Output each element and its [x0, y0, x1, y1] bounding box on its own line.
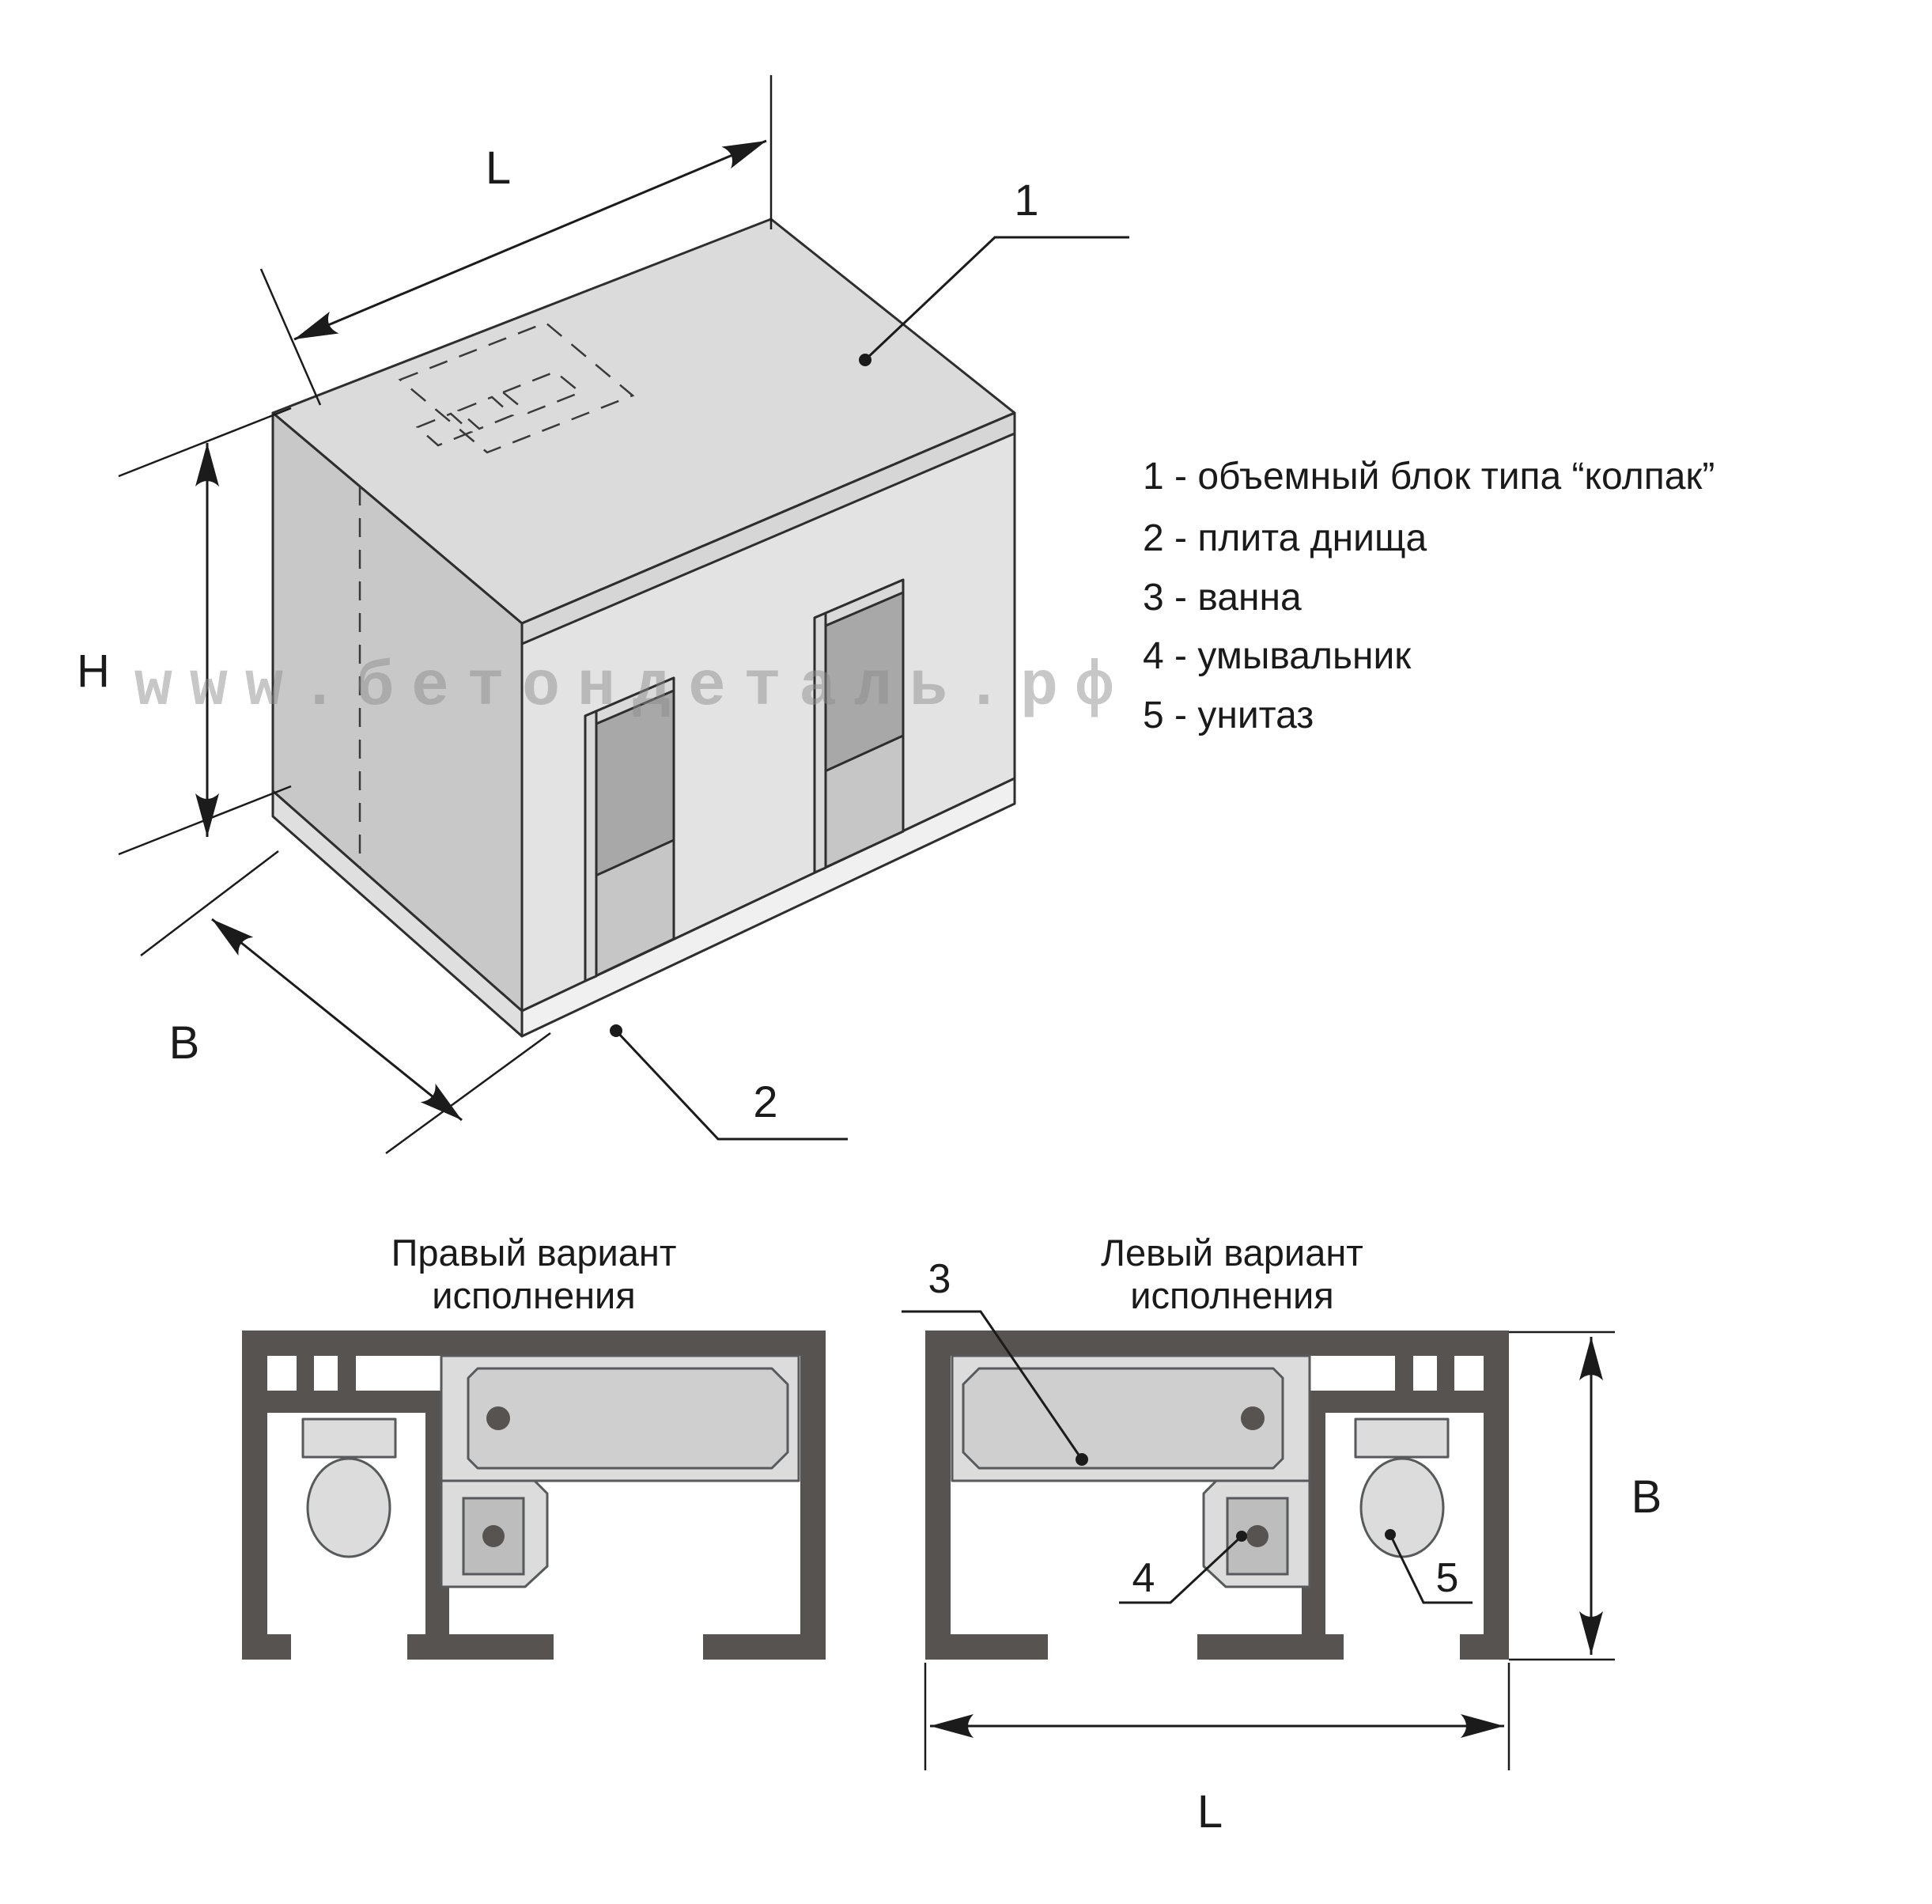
leader-bath-number: 3 [928, 1256, 951, 1302]
door-opening-right [815, 580, 903, 873]
plan-left-variant: Левый вариант исполнения [902, 1232, 1662, 1838]
toilet-tank [303, 1419, 395, 1457]
drawing-canvas: L H B 1 2 www.бетондеталь.р [0, 0, 1932, 1904]
washbasin-drain [1246, 1525, 1268, 1547]
plan-right-variant: Правый вариант исполнения [242, 1232, 826, 1660]
plan-left-title-line1: Левый вариант [1101, 1232, 1363, 1274]
dim-length-label: L [486, 142, 511, 194]
washbasin-drain [482, 1525, 505, 1547]
dimension-height-iso: H [77, 408, 291, 854]
bathtub-drain [486, 1406, 510, 1430]
legend-item-1: 1 - объемный блок типа “колпак” [1143, 456, 1715, 498]
legend: 1 - объемный блок типа “колпак” 2 - плит… [1143, 456, 1715, 736]
plan-left-bathtub [952, 1356, 1310, 1481]
plan-left-washbasin [1204, 1481, 1310, 1587]
sanitary-cabin-technical-drawing: L H B 1 2 www.бетондеталь.р [0, 0, 1932, 1904]
plan-right-bathtub [441, 1356, 799, 1481]
toilet-tank [1355, 1419, 1448, 1457]
bathtub-drain [1241, 1406, 1265, 1430]
watermark-text: www.бетондеталь.рф [134, 652, 1131, 724]
isometric-cabin-view: L H B 1 2 www.бетондеталь.р [77, 75, 1131, 1153]
bathtub-basin [963, 1368, 1283, 1468]
leader-slab: 2 [610, 1024, 848, 1139]
legend-item-4: 4 - умывальник [1143, 635, 1412, 677]
leader-washbasin-number: 4 [1132, 1555, 1155, 1601]
leader-slab-number: 2 [753, 1077, 777, 1126]
plan-left-toilet [1355, 1419, 1448, 1557]
leader-block-number: 1 [1014, 175, 1038, 225]
toilet-bowl [308, 1459, 390, 1557]
dim-height-label: H [77, 645, 110, 697]
dim-depth-label: B [169, 1017, 200, 1069]
door-left-jamb [585, 711, 596, 981]
toilet-bowl [1361, 1459, 1443, 1557]
plan-dim-length-label: L [1197, 1786, 1223, 1838]
plan-left-title-line2: исполнения [1130, 1274, 1334, 1316]
legend-item-5: 5 - унитаз [1143, 695, 1314, 736]
plan-dim-depth-label: B [1631, 1471, 1662, 1523]
plan-right-transom [267, 1391, 449, 1413]
plan-right-washbasin [441, 1481, 547, 1587]
dimension-length-plan: L [925, 1663, 1509, 1838]
bathtub-basin [468, 1368, 788, 1468]
dimension-depth-plan: B [1509, 1332, 1662, 1660]
legend-item-2: 2 - плита днища [1143, 517, 1427, 559]
plan-right-title-line2: исполнения [432, 1274, 636, 1316]
legend-item-3: 3 - ванна [1143, 577, 1302, 619]
plan-right-title-line1: Правый вариант [391, 1232, 677, 1274]
leader-toilet-number: 5 [1436, 1555, 1459, 1601]
plan-right-toilet [303, 1419, 395, 1557]
plan-left-transom [1302, 1391, 1484, 1413]
